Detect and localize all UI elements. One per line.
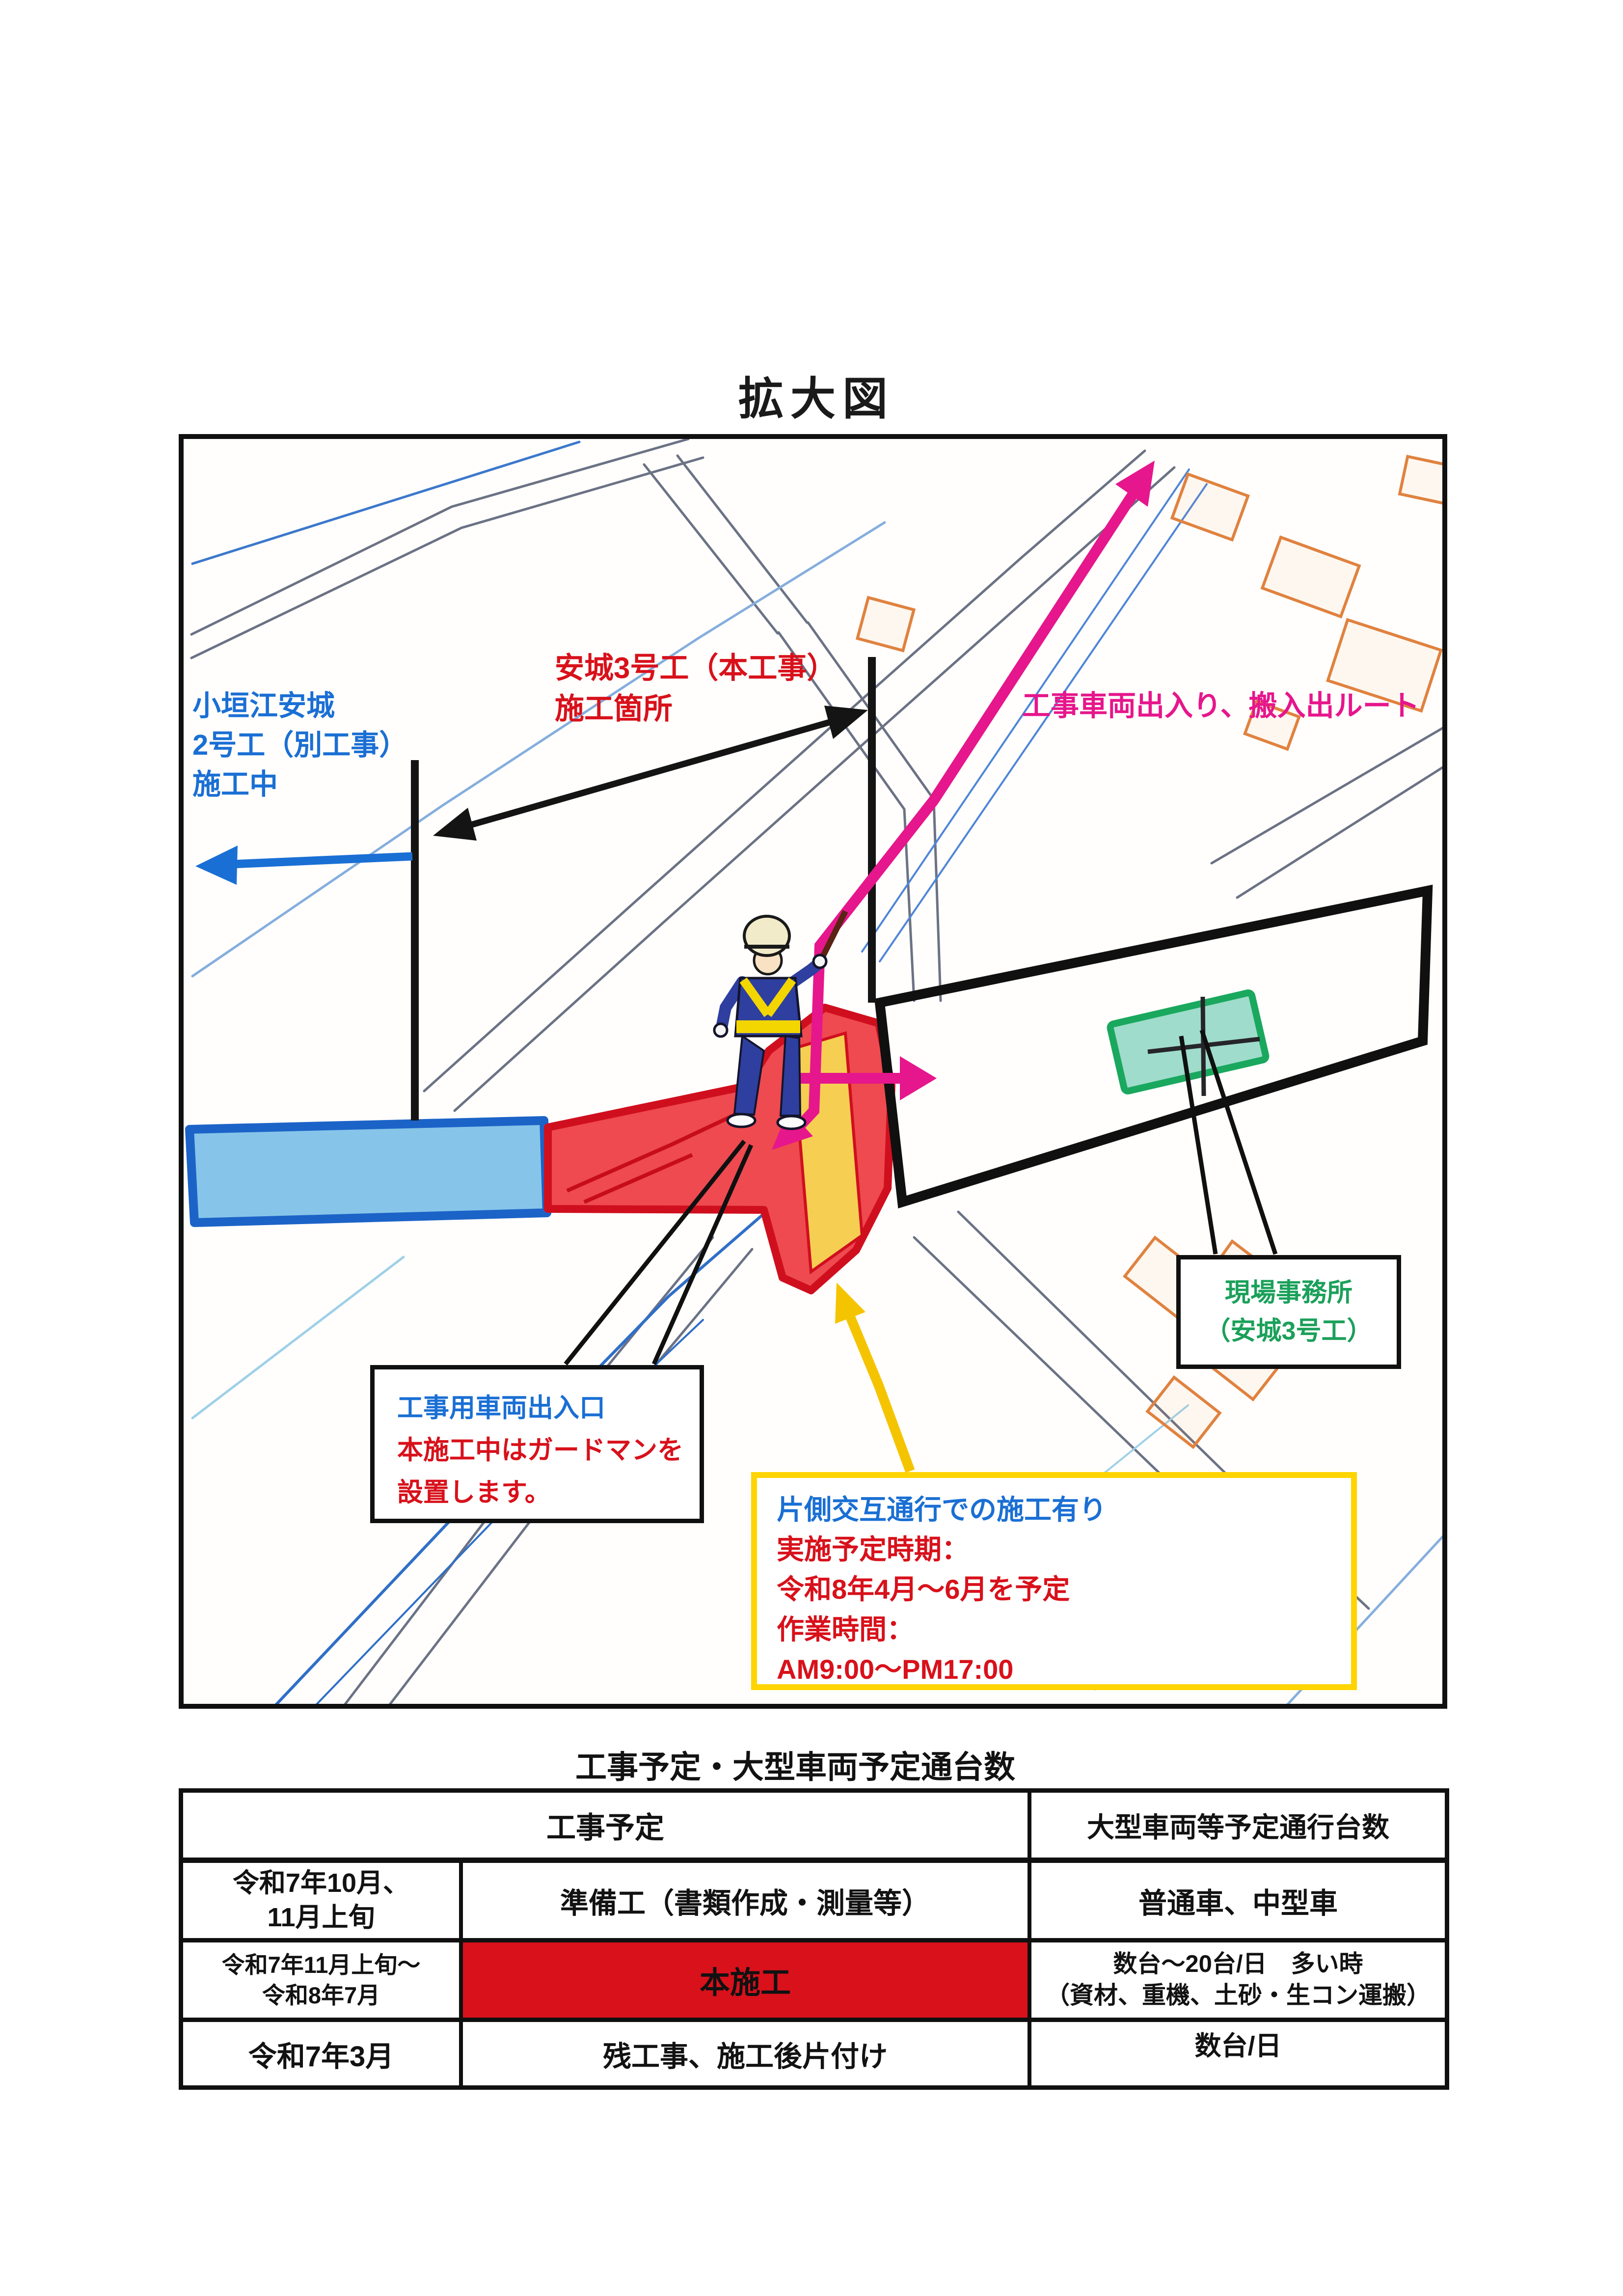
- row2-traffic: 数台～20台/日 多い時 （資材、重機、土砂・生コン運搬）: [1031, 1942, 1445, 2018]
- schedule-table-title: 工事予定・大型車両予定通台数: [491, 1742, 1100, 1787]
- row3-work: 残工事、施工後片付け: [463, 2022, 1028, 2085]
- other-project-label: 小垣江安城 2号工（別工事） 施工中: [192, 686, 407, 804]
- row3-traffic: 数台/日: [1031, 2022, 1445, 2085]
- row1-work: 準備工（書類作成・測量等）: [463, 1863, 1028, 1938]
- haul-route-label: 工事車両出入り、搬入出ルート: [1022, 686, 1420, 726]
- scanned-notice-page: 拡大図: [0, 0, 1623, 2296]
- oneway-callout: 片側交互通行での施工有り 実施予定時期： 令和8年4月～6月を予定 作業時間： …: [751, 1472, 1357, 1690]
- main-project-label: 安城3号工（本工事） 施工箇所: [555, 648, 836, 730]
- row2-work-main-construction: 本施工: [461, 1940, 1029, 2020]
- header-vehicle-count: 大型車両等予定通行台数: [1031, 1793, 1445, 1858]
- header-work-schedule: 工事予定: [183, 1793, 1028, 1858]
- entrance-callout-body: 本施工中はガードマンを 設置します。: [397, 1429, 700, 1514]
- row3-period: 令和7年3月: [183, 2022, 459, 2085]
- row2-period: 令和7年11月上旬～ 令和8年7月: [183, 1942, 459, 2018]
- table-hline-row1: [183, 1938, 1445, 1942]
- oneway-callout-title: 片側交互通行での施工有り: [777, 1490, 1351, 1530]
- other-project-zone: [189, 1121, 547, 1223]
- row1-traffic: 普通車、中型車: [1031, 1863, 1445, 1938]
- schedule-table: 工事予定 大型車両等予定通行台数 令和7年10月、 11月上旬 準備工（書類作成…: [179, 1788, 1449, 2090]
- entrance-callout-title: 工事用車両出入口: [397, 1387, 700, 1429]
- oneway-callout-body: 実施予定時期： 令和8年4月～6月を予定 作業時間： AM9:00～PM17:0…: [777, 1530, 1351, 1689]
- table-hline-row2: [183, 2018, 1445, 2022]
- page-title: 拡大図: [689, 362, 944, 428]
- entrance-callout: 工事用車両出入口 本施工中はガードマンを 設置します。: [370, 1365, 704, 1523]
- office-callout: 現場事務所 （安城3号工）: [1176, 1255, 1401, 1369]
- oneway-pointer-arrow: [835, 1283, 910, 1471]
- row1-period: 令和7年10月、 11月上旬: [183, 1863, 459, 1938]
- table-vline-period: [459, 1858, 463, 2085]
- other-project-direction-arrow: [195, 846, 412, 885]
- table-hline-header: [183, 1858, 1445, 1863]
